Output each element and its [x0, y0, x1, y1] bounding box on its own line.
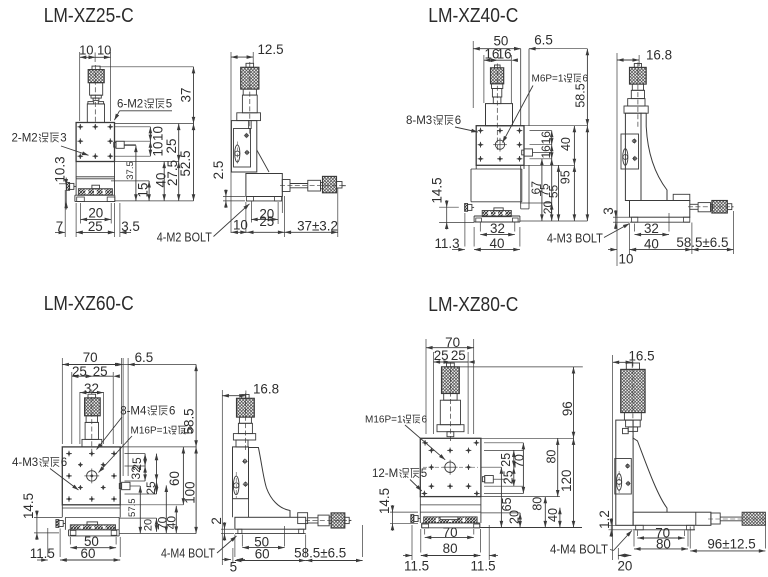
svg-text:25: 25 — [88, 219, 103, 234]
svg-text:95: 95 — [559, 170, 573, 184]
svg-text:12.5: 12.5 — [257, 42, 283, 57]
svg-text:3: 3 — [60, 133, 66, 145]
svg-text:40: 40 — [490, 236, 505, 251]
svg-text:60: 60 — [255, 547, 270, 562]
svg-text:14.5: 14.5 — [377, 488, 392, 514]
svg-text:6: 6 — [455, 115, 461, 127]
svg-text:100: 100 — [182, 481, 197, 503]
svg-text:25: 25 — [144, 481, 158, 495]
svg-text:14.5: 14.5 — [430, 177, 445, 203]
svg-text:70: 70 — [512, 454, 526, 468]
svg-text:55: 55 — [546, 185, 560, 199]
svg-text:6.5: 6.5 — [135, 350, 154, 365]
svg-text:12-M: 12-M — [372, 468, 398, 480]
svg-text:14.5: 14.5 — [21, 493, 36, 519]
svg-text:96: 96 — [560, 401, 575, 416]
svg-text:80: 80 — [531, 497, 545, 511]
svg-text:40: 40 — [546, 508, 560, 522]
svg-text:58.5: 58.5 — [574, 83, 588, 107]
svg-text:4-M3: 4-M3 — [12, 457, 38, 469]
svg-text:10: 10 — [150, 142, 165, 157]
svg-text:8-M4: 8-M4 — [120, 406, 147, 418]
svg-text:16.8: 16.8 — [646, 47, 672, 62]
svg-text:LM-XZ40-C: LM-XZ40-C — [428, 5, 518, 27]
svg-text:20: 20 — [541, 201, 555, 215]
svg-text:37±3.2: 37±3.2 — [297, 218, 338, 233]
svg-text:10: 10 — [233, 217, 248, 232]
svg-text:65: 65 — [500, 497, 514, 511]
svg-text:1.2: 1.2 — [597, 510, 612, 529]
svg-text:5: 5 — [166, 99, 172, 111]
svg-text:6: 6 — [61, 457, 67, 469]
svg-text:96±12.5: 96±12.5 — [707, 537, 755, 552]
svg-text:80: 80 — [545, 450, 559, 464]
svg-text:16: 16 — [539, 145, 553, 159]
svg-text:40: 40 — [644, 236, 659, 251]
svg-text:80: 80 — [656, 536, 671, 551]
svg-text:25: 25 — [72, 364, 87, 379]
svg-text:60: 60 — [81, 546, 96, 561]
svg-text:6-M2: 6-M2 — [117, 99, 143, 111]
svg-text:70: 70 — [83, 350, 98, 365]
svg-text:32: 32 — [129, 466, 143, 480]
svg-text:58.5±6.5: 58.5±6.5 — [294, 546, 346, 561]
svg-text:57.5: 57.5 — [127, 498, 138, 517]
svg-text:20: 20 — [617, 558, 632, 573]
svg-text:11.5: 11.5 — [470, 559, 495, 574]
svg-text:15: 15 — [136, 183, 151, 198]
svg-text:LM-XZ25-C: LM-XZ25-C — [44, 5, 134, 27]
svg-text:10: 10 — [150, 126, 165, 141]
svg-text:5: 5 — [421, 468, 427, 480]
svg-text:25: 25 — [93, 364, 108, 379]
svg-text:25: 25 — [499, 453, 513, 467]
svg-text:3: 3 — [601, 207, 616, 214]
svg-text:16: 16 — [539, 131, 553, 145]
svg-text:11.3: 11.3 — [434, 236, 459, 251]
svg-text:3.5: 3.5 — [121, 219, 140, 234]
svg-text:LM-XZ80-C: LM-XZ80-C — [428, 294, 518, 316]
svg-text:40: 40 — [153, 173, 168, 188]
svg-text:M16P=1: M16P=1 — [131, 426, 169, 437]
svg-text:25: 25 — [164, 139, 179, 154]
svg-text:M16P=1: M16P=1 — [365, 415, 403, 426]
svg-text:10: 10 — [97, 43, 111, 58]
svg-text:32: 32 — [644, 221, 659, 236]
svg-text:2-M2: 2-M2 — [12, 133, 38, 145]
svg-text:6.5: 6.5 — [534, 33, 553, 48]
svg-text:58.5±6.5: 58.5±6.5 — [676, 235, 728, 250]
svg-text:80: 80 — [443, 541, 458, 556]
svg-text:11.5: 11.5 — [404, 559, 429, 574]
svg-text:2.5: 2.5 — [211, 161, 226, 180]
svg-text:7: 7 — [56, 219, 63, 234]
svg-text:25: 25 — [259, 214, 274, 229]
svg-text:32: 32 — [84, 381, 99, 396]
svg-text:20: 20 — [508, 510, 522, 524]
svg-text:5: 5 — [230, 560, 237, 575]
svg-text:4-M3 BOLT: 4-M3 BOLT — [547, 231, 603, 246]
svg-text:10: 10 — [619, 252, 634, 267]
svg-text:2: 2 — [209, 517, 224, 524]
svg-text:52.5: 52.5 — [178, 150, 193, 176]
svg-text:40: 40 — [559, 137, 573, 151]
svg-text:4-M4 BOLT: 4-M4 BOLT — [550, 542, 608, 557]
svg-text:70: 70 — [443, 525, 458, 540]
svg-text:60: 60 — [167, 471, 182, 486]
svg-text:37: 37 — [179, 88, 194, 103]
svg-text:8-M3: 8-M3 — [406, 115, 432, 127]
svg-text:10: 10 — [79, 43, 93, 58]
svg-text:120: 120 — [559, 470, 574, 492]
svg-text:25: 25 — [434, 348, 449, 363]
svg-text:6: 6 — [187, 426, 193, 437]
svg-text:67: 67 — [529, 181, 543, 195]
svg-text:40: 40 — [164, 516, 178, 530]
svg-text:10.3: 10.3 — [52, 156, 67, 182]
svg-text:6: 6 — [583, 74, 589, 85]
svg-text:20: 20 — [143, 519, 155, 531]
svg-text:LM-XZ60-C: LM-XZ60-C — [44, 293, 134, 315]
svg-text:11.5: 11.5 — [30, 546, 55, 561]
svg-text:25: 25 — [502, 470, 516, 484]
svg-text:4-M4 BOLT: 4-M4 BOLT — [161, 546, 215, 561]
svg-text:32: 32 — [490, 221, 505, 236]
svg-text:4-M2 BOLT: 4-M2 BOLT — [157, 230, 212, 245]
svg-text:16: 16 — [497, 46, 512, 61]
svg-text:6: 6 — [169, 406, 175, 418]
svg-text:37.5: 37.5 — [125, 161, 136, 180]
svg-text:6: 6 — [422, 415, 428, 426]
svg-text:25: 25 — [451, 348, 466, 363]
svg-text:M6P=1: M6P=1 — [532, 74, 564, 85]
svg-text:16.8: 16.8 — [253, 381, 279, 396]
